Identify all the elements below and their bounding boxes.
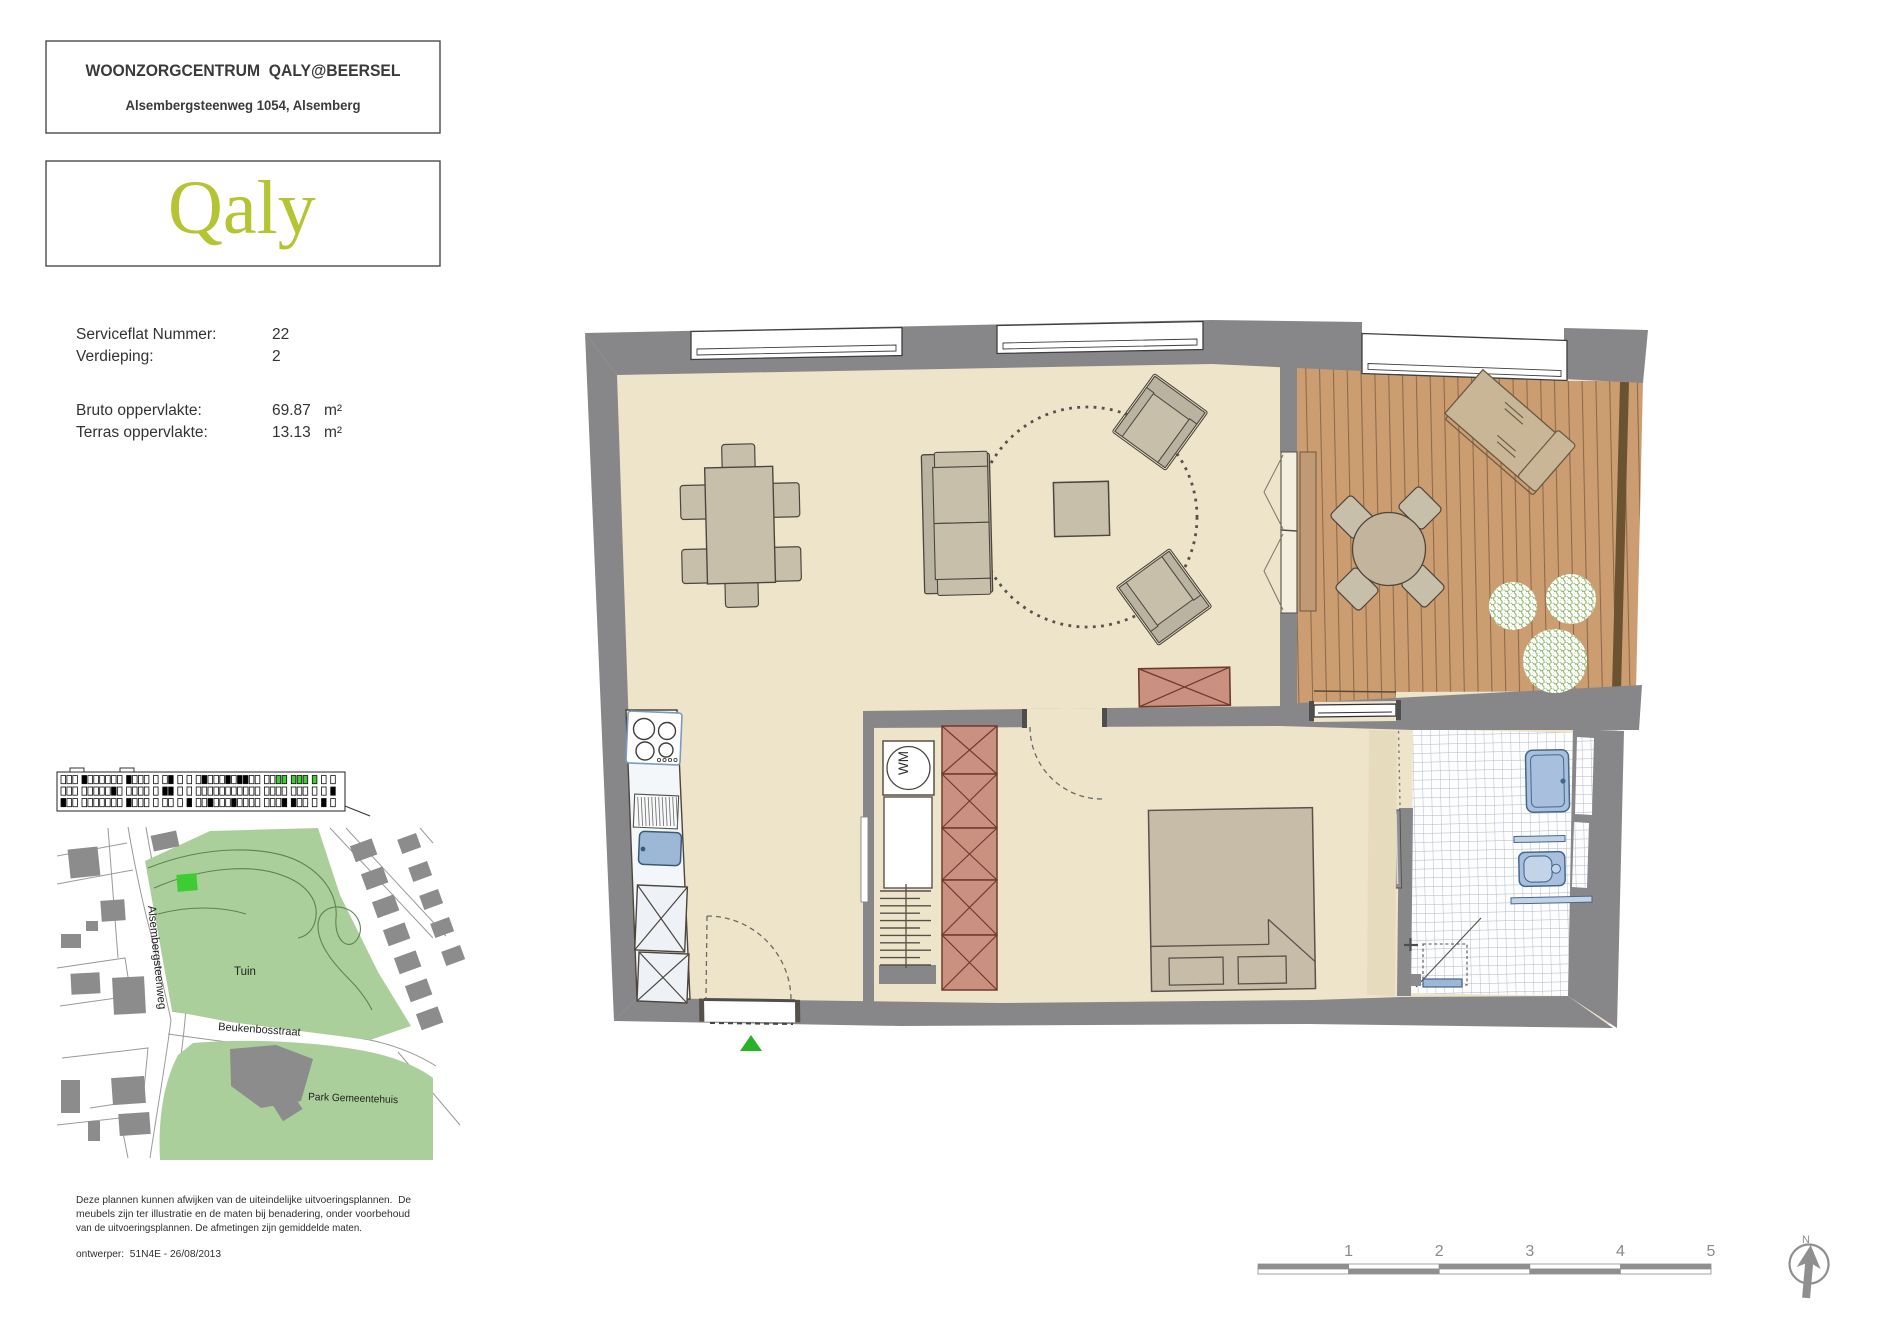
svg-text:22: 22	[272, 326, 289, 343]
svg-text:Terras oppervlakte:: Terras oppervlakte:	[76, 424, 208, 441]
svg-text:meubels zijn ter illustratie e: meubels zijn ter illustratie en de maten…	[76, 1209, 410, 1220]
svg-text:Bruto oppervlakte:: Bruto oppervlakte:	[76, 402, 202, 419]
svg-text:5: 5	[1707, 1243, 1716, 1260]
svg-text:2: 2	[272, 348, 281, 365]
svg-text:3: 3	[1525, 1243, 1534, 1260]
svg-text:Verdieping:: Verdieping:	[76, 348, 154, 365]
svg-text:Alsembergsteenweg 1054, Alsemb: Alsembergsteenweg 1054, Alsemberg	[126, 97, 361, 113]
svg-text:2: 2	[1435, 1243, 1444, 1260]
svg-text:N: N	[1802, 1234, 1810, 1246]
svg-text:69.87: 69.87	[272, 402, 311, 419]
svg-text:WM: WM	[896, 751, 911, 775]
svg-text:Tuin: Tuin	[234, 966, 256, 978]
svg-text:Deze plannen kunnen afwijken v: Deze plannen kunnen afwijken van de uite…	[76, 1195, 411, 1206]
svg-text:Qaly: Qaly	[168, 166, 316, 250]
svg-text:m²: m²	[324, 402, 342, 419]
svg-text:van de uitvoeringsplannen. De: van de uitvoeringsplannen. De afmetingen…	[76, 1223, 362, 1234]
svg-text:Serviceflat Nummer:: Serviceflat Nummer:	[76, 326, 216, 343]
svg-text:1: 1	[1344, 1243, 1353, 1260]
svg-text:4: 4	[1616, 1243, 1625, 1260]
svg-text:m²: m²	[324, 424, 342, 441]
svg-text:ontwerper: 51N4E - 26/08/2013: ontwerper: 51N4E - 26/08/2013	[76, 1249, 221, 1260]
svg-text:13.13: 13.13	[272, 424, 311, 441]
svg-text:WOONZORGCENTRUM QALY@BEERSEL: WOONZORGCENTRUM QALY@BEERSEL	[86, 62, 401, 80]
